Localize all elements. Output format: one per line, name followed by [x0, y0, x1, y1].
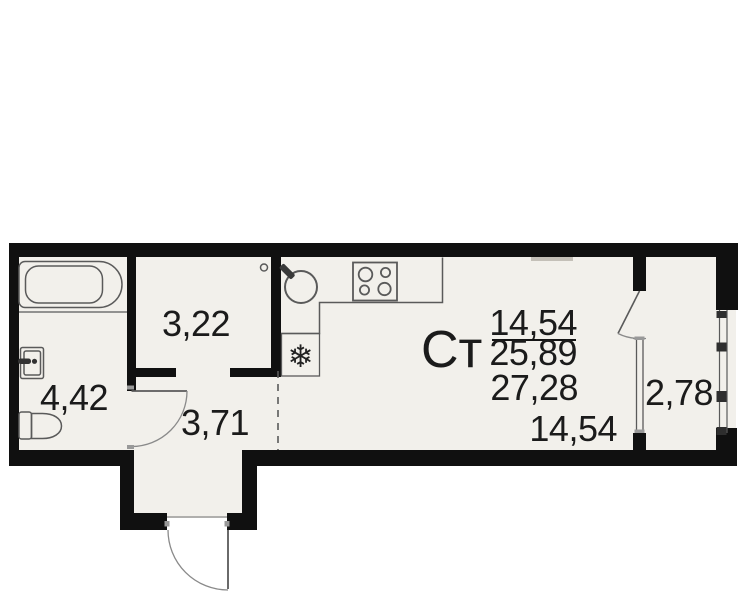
- floor-plan: ❄: [0, 0, 749, 600]
- closet-area-label: 3,22: [156, 306, 236, 342]
- fridge: ❄: [282, 334, 320, 377]
- balcony-glazing: [717, 310, 728, 435]
- freezer-icon: ❄: [288, 339, 314, 375]
- bathroom-sink: [18, 348, 44, 379]
- fixtures-layer: ❄: [0, 0, 749, 600]
- living-room-area-label: 14,54: [500, 411, 617, 447]
- closet-door-pivot-icon: [261, 264, 268, 271]
- bathroom-area-label: 4,42: [34, 380, 114, 416]
- balcony-door: [618, 291, 646, 339]
- bathtub: [19, 262, 122, 308]
- area-without-balcony-value: 25,89: [460, 335, 577, 371]
- stove: [353, 263, 397, 301]
- total-area-value: 27,28: [460, 370, 578, 406]
- hallway-area-label: 3,71: [175, 405, 255, 441]
- kitchen-sink: [279, 263, 317, 303]
- entrance-door: [165, 517, 230, 590]
- balcony-area-label: 2,78: [639, 375, 719, 411]
